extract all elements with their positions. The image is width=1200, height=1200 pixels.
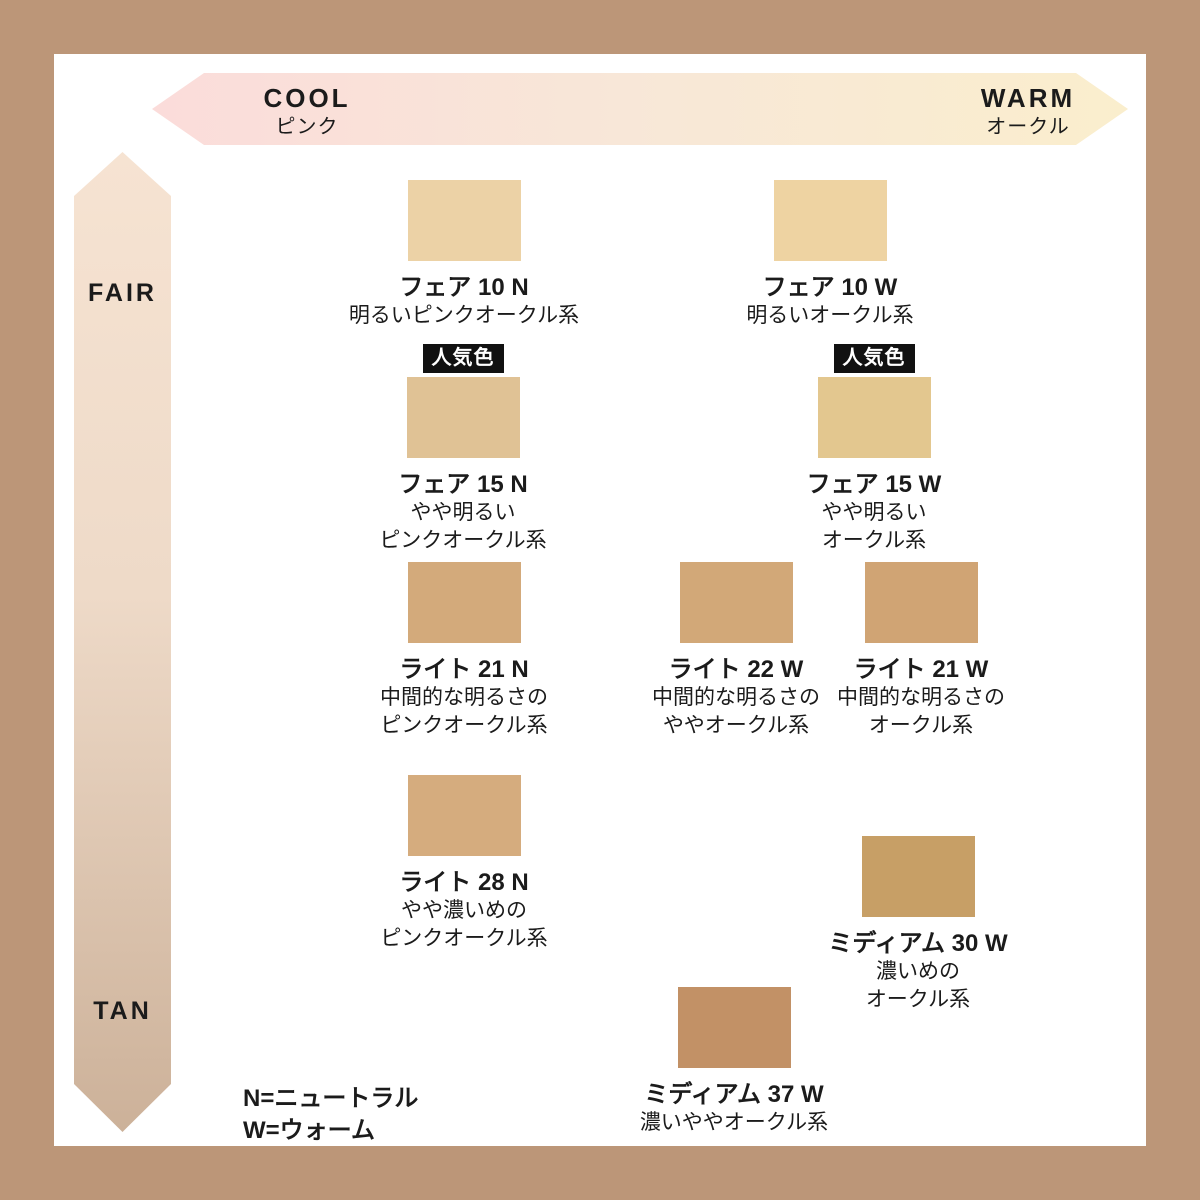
shade-chart: COOL ピンク WARM オークル FAIR TAN フェア 10 N 明るい…: [0, 0, 1200, 1200]
shade-desc: オークル系: [866, 986, 970, 1014]
shade-desc: 濃いややオークル系: [640, 1109, 828, 1137]
shade-cell-fair-15n: 人気色 フェア 15 N やや明るい ピンクオークル系: [338, 344, 588, 555]
popular-badge: 人気色: [834, 344, 915, 373]
shade-name: ライト 21 N: [399, 656, 528, 684]
shade-swatch: [862, 836, 975, 917]
legend-neutral: N=ニュートラル: [243, 1083, 418, 1115]
shade-cell-fair-10n: フェア 10 N 明るいピンクオークル系: [339, 180, 589, 330]
undertone-legend: N=ニュートラル W=ウォーム: [243, 1083, 418, 1147]
warm-label: WARM: [981, 84, 1075, 113]
shade-desc: ピンクオークル系: [380, 925, 547, 953]
shade-desc: ピンクオークル系: [379, 527, 546, 555]
cool-label: COOL: [263, 84, 350, 113]
shade-cell-fair-15w: 人気色 フェア 15 W やや明るい オークル系: [749, 344, 999, 555]
shade-swatch: [774, 180, 887, 261]
shade-desc: 明るいピンクオークル系: [349, 302, 579, 330]
shade-name: フェア 15 N: [398, 471, 527, 499]
shade-name: ライト 21 W: [854, 656, 989, 684]
shade-desc: 中間的な明るさの: [837, 684, 1005, 712]
shade-name: フェア 10 N: [399, 274, 528, 302]
cool-sublabel: ピンク: [276, 116, 339, 138]
shade-desc: オークル系: [869, 712, 973, 740]
shade-swatch: [407, 377, 520, 458]
shade-desc: ピンクオークル系: [380, 712, 547, 740]
shade-desc: オークル系: [822, 527, 926, 555]
shade-desc: ややオークル系: [663, 712, 809, 740]
shade-swatch: [408, 562, 521, 643]
shade-name: ライト 28 N: [399, 869, 528, 897]
shade-cell-light-28n: ライト 28 N やや濃いめの ピンクオークル系: [339, 775, 589, 953]
shade-name: ミディアム 30 W: [828, 930, 1007, 958]
shade-swatch: [408, 775, 521, 856]
warm-sublabel: オークル: [986, 116, 1069, 138]
shade-name: フェア 15 W: [807, 471, 942, 499]
shade-swatch: [408, 180, 521, 261]
legend-warm: W=ウォーム: [243, 1115, 418, 1147]
shade-cell-medium-37w: ミディアム 37 W 濃いややオークル系: [609, 987, 859, 1137]
shade-swatch: [680, 562, 793, 643]
shade-desc: 中間的な明るさの: [380, 684, 548, 712]
shade-desc: 濃いめの: [876, 958, 960, 986]
axis-label-warm: WARM オークル: [943, 84, 1113, 138]
shade-desc: 中間的な明るさの: [652, 684, 820, 712]
shade-name: ミディアム 37 W: [644, 1081, 823, 1109]
shade-desc: やや明るい: [822, 499, 927, 527]
shade-name: ライト 22 W: [669, 656, 804, 684]
shade-cell-light-21w: ライト 21 W 中間的な明るさの オークル系: [796, 562, 1046, 740]
popular-badge: 人気色: [423, 344, 504, 373]
shade-cell-fair-10w: フェア 10 W 明るいオークル系: [705, 180, 955, 330]
shade-swatch: [818, 377, 931, 458]
cool-warm-axis-arrow: COOL ピンク WARM オークル: [152, 73, 1128, 145]
tan-label: TAN: [74, 999, 171, 1024]
shade-swatch: [678, 987, 791, 1068]
shade-swatch: [865, 562, 978, 643]
axis-label-cool: COOL ピンク: [222, 84, 392, 138]
shade-name: フェア 10 W: [763, 274, 898, 302]
shade-desc: やや濃いめの: [401, 897, 527, 925]
fair-label: FAIR: [74, 281, 171, 306]
shade-desc: 明るいオークル系: [746, 302, 913, 330]
shade-cell-light-21n: ライト 21 N 中間的な明るさの ピンクオークル系: [339, 562, 589, 740]
shade-desc: やや明るい: [411, 499, 516, 527]
